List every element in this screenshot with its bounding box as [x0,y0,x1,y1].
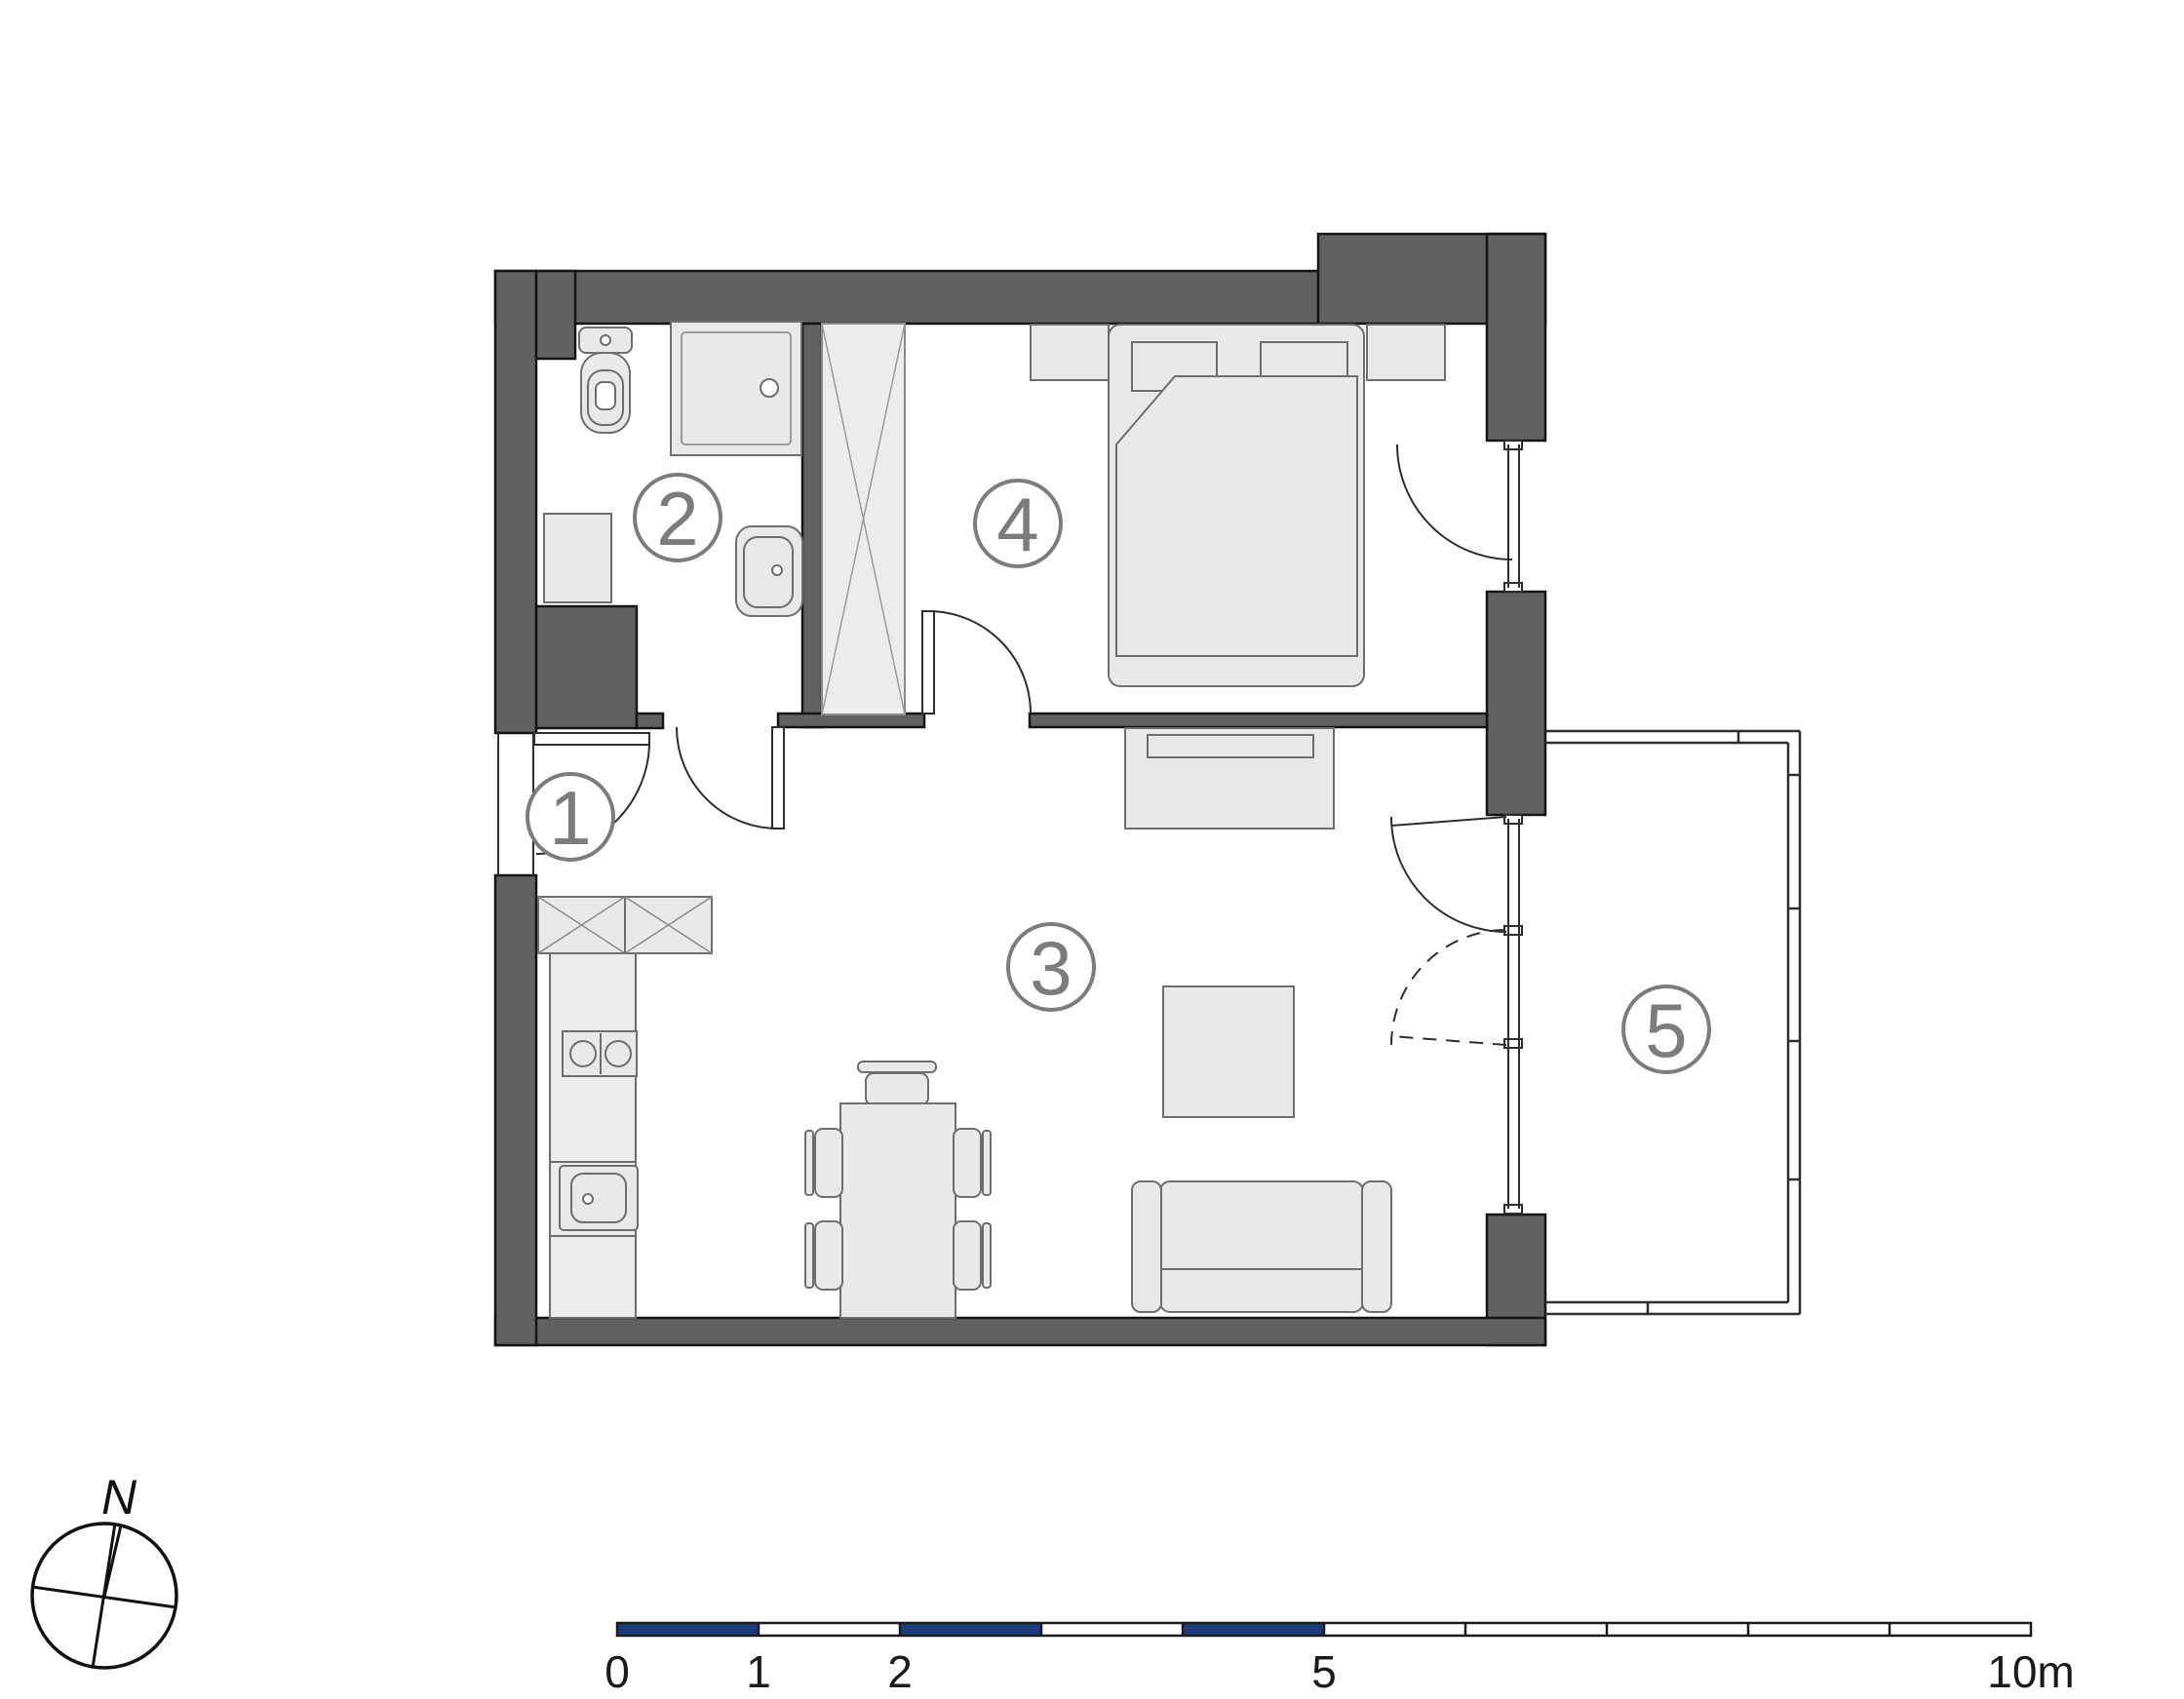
wall-left-upper [495,271,536,733]
bedroom-door [922,611,1031,714]
nightstand-right [1367,325,1445,380]
dining-set [805,1062,991,1318]
wall-top [495,271,1318,324]
bathroom-door [677,727,784,829]
scale-segment-blue [1183,1623,1324,1636]
wall-bathroom-door-lip [637,714,663,728]
scale-label-1: 1 [746,1646,771,1697]
sink-drain [772,565,782,575]
wall-left-lower [495,875,536,1345]
scale-segment-blue [900,1623,1041,1636]
bedroom-door-leaf [922,611,934,714]
chair-seat [815,1129,842,1197]
shower [671,322,801,455]
compass: N [32,1470,176,1668]
north-label: N [101,1470,137,1525]
chair-back [858,1062,936,1072]
scale-segment-blue [617,1623,759,1636]
wall-bottom [495,1318,1545,1345]
kitchen-sink-drain [583,1194,593,1204]
chair-seat [954,1221,981,1290]
bed [1109,325,1364,686]
sideboard-body [1125,728,1334,829]
counter-run [550,953,636,1318]
nightstand-left [1031,325,1109,380]
floor-plan-canvas: 1 2 3 4 5 N 0 [0,0,2184,1699]
chair-back [983,1131,991,1195]
bathroom-door-leaf [772,727,784,829]
furniture [538,322,1445,1318]
balcony-door [1391,815,1522,1214]
scale-label-0: 0 [604,1646,630,1697]
shower-drain [760,379,778,397]
scale-label-5: 5 [1311,1646,1337,1697]
window-swing-arc [1397,444,1512,560]
entrance-door-leaf [534,733,649,745]
wall-hall-partition [778,714,924,727]
wall-bathroom-partition [802,324,822,727]
duvet [1116,376,1357,656]
chair-back [805,1131,813,1195]
sofa-body [1160,1181,1363,1312]
bathroom-sink [736,526,802,616]
wardrobe [822,324,905,714]
toilet-bowl-center [596,382,615,409]
balcony-door-swing-arc-dashed [1391,930,1506,1045]
coffee-table [1163,986,1294,1117]
room-number-2: 2 [656,476,698,561]
floor-plan-drawing: 1 2 3 4 5 N 0 [0,0,2184,1699]
chair-seat [866,1073,928,1105]
chair-back [805,1223,813,1288]
room-number-3: 3 [1030,925,1072,1011]
dining-table [840,1103,955,1318]
toilet-flush-button [601,335,610,345]
balcony-door-leaf-dashed [1391,1036,1506,1045]
wall-right-upper [1487,234,1545,441]
scale-bar: 0 1 2 5 10m [604,1623,2075,1697]
bedroom-door-swing-arc [928,611,1031,714]
toilet [579,328,632,433]
sofa-armrest [1132,1181,1161,1312]
bathroom-door-swing-arc [677,727,778,829]
scale-label-10: 10m [1987,1646,2074,1697]
scale-label-2: 2 [887,1646,913,1697]
kitchen-counter [550,953,638,1318]
room-number-5: 5 [1645,987,1687,1073]
wall-bedroom-partition [1030,714,1487,727]
walls [495,234,1545,1345]
room-number-1: 1 [549,775,591,861]
sideboard [1125,728,1334,829]
chair-back [983,1223,991,1288]
wall-bathroom-block [536,606,637,728]
room-number-4: 4 [996,482,1038,567]
chair-seat [815,1221,842,1290]
balcony-door-leaf [1391,817,1506,826]
shower-tray [671,322,801,455]
wall-right-middle [1487,592,1545,815]
bedroom-window [1397,441,1522,592]
chair-seat [954,1129,981,1197]
kitchen-upper-cabinets [538,897,712,953]
sofa [1132,1181,1391,1312]
balcony-door-swing-arc [1391,817,1506,932]
wall-left-top-thick [536,271,575,359]
sofa-armrest [1362,1181,1391,1312]
washing-machine [544,514,611,602]
